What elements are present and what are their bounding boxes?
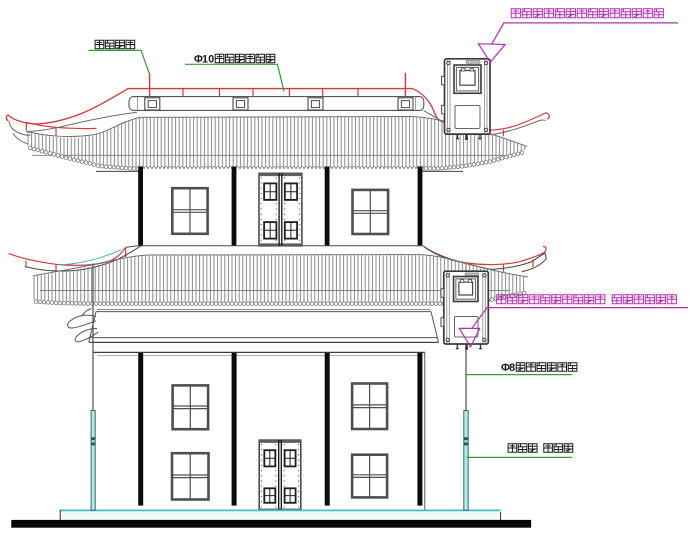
svg-text:0: 0 — [208, 54, 214, 66]
svg-text:1: 1 — [202, 54, 208, 66]
svg-text:8: 8 — [509, 362, 515, 374]
